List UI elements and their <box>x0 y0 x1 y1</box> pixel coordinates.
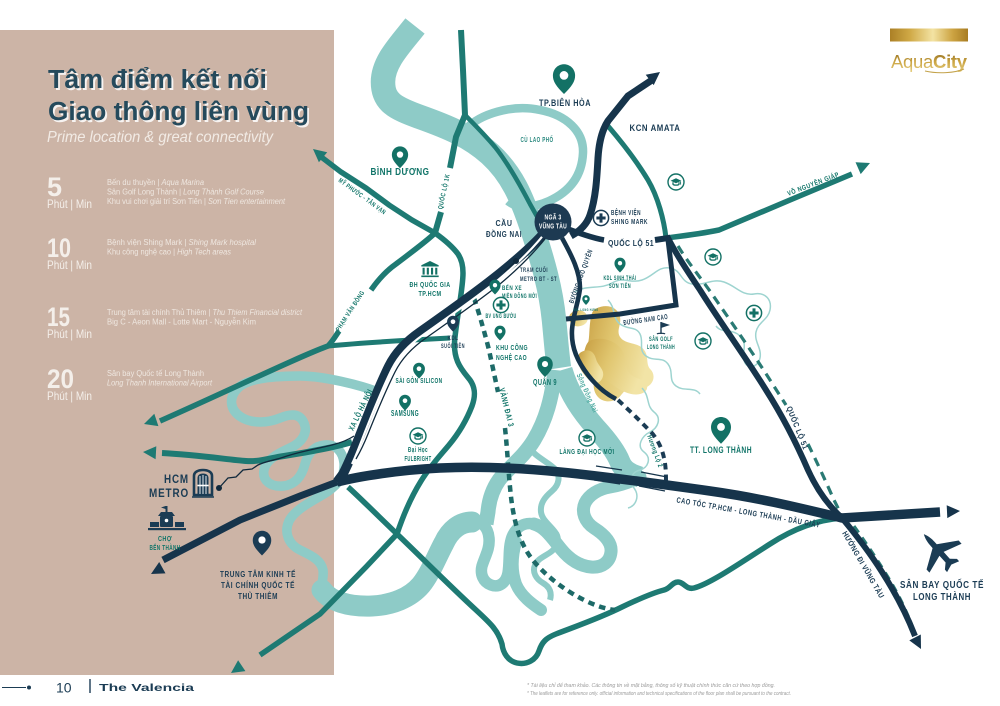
svg-text:ĐH QUỐC GIA: ĐH QUỐC GIA <box>410 279 451 289</box>
svg-text:Phút | Min: Phút | Min <box>47 327 92 341</box>
svg-text:SƠN TIÊN: SƠN TIÊN <box>609 281 631 290</box>
svg-text:* The leaflets are for referen: * The leaflets are for reference only. o… <box>527 691 791 697</box>
svg-text:Long Thanh International Airpo: Long Thanh International Airport <box>107 379 213 388</box>
svg-text:Phút | Min: Phút | Min <box>47 197 92 211</box>
svg-text:SÂN GOLF: SÂN GOLF <box>649 334 673 343</box>
svg-text:Giao thông liên vùng: Giao thông liên vùng <box>48 98 309 126</box>
svg-text:NGÃ 3: NGÃ 3 <box>545 213 562 222</box>
svg-text:ĐỒNG NAI: ĐỒNG NAI <box>486 228 522 239</box>
svg-text:SÀI GÒN SILICON: SÀI GÒN SILICON <box>396 376 443 385</box>
svg-text:Sân bay Quốc tế Long Thành: Sân bay Quốc tế Long Thành <box>107 369 204 378</box>
svg-text:KHU CÔNG: KHU CÔNG <box>496 343 528 352</box>
svg-text:The Valencia: The Valencia <box>99 682 194 694</box>
svg-text:Prime location & great connect: Prime location & great connectivity <box>47 129 274 146</box>
svg-text:Sân Golf Long Thành | Long Thà: Sân Golf Long Thành | Long Thành Golf Co… <box>107 188 265 197</box>
svg-text:KDL SINH THÁI: KDL SINH THÁI <box>604 273 637 282</box>
svg-text:BV UNG BƯỚU: BV UNG BƯỚU <box>486 311 517 320</box>
svg-text:SHING MARK: SHING MARK <box>611 219 648 226</box>
svg-text:BÌNH DƯƠNG: BÌNH DƯƠNG <box>371 165 430 178</box>
svg-text:Khu vui chơi giải trí Sơn Tiên: Khu vui chơi giải trí Sơn Tiên | Sơn Tie… <box>107 197 286 206</box>
svg-text:Trung tâm tài chính Thủ Thiêm: Trung tâm tài chính Thủ Thiêm | Thu Thie… <box>107 308 303 317</box>
svg-text:CHỢ: CHỢ <box>158 534 172 543</box>
svg-text:CẦU: CẦU <box>496 218 513 228</box>
svg-text:Khu công nghệ cao | High Tech: Khu công nghệ cao | High Tech areas <box>107 248 231 257</box>
svg-text:BẾN XE: BẾN XE <box>502 285 522 292</box>
svg-text:Bệnh viện Shing Mark | Shing M: Bệnh viện Shing Mark | Shing Mark hospit… <box>107 238 256 247</box>
svg-text:METRO: METRO <box>149 488 189 500</box>
svg-text:HCM: HCM <box>164 474 189 486</box>
svg-text:LÀNG ĐẠI HỌC MỚI: LÀNG ĐẠI HỌC MỚI <box>560 447 615 456</box>
svg-text:Tâm điểm kết nối: Tâm điểm kết nối <box>48 66 267 94</box>
svg-text:Big C - Aeon Mall - Lotte: Big C - Aeon Mall - Lotte Mart - Nguyễn … <box>107 318 256 327</box>
svg-text:LONG THÀNH: LONG THÀNH <box>647 342 675 351</box>
svg-text:Bến du thuyền | Aqua Marina: Bến du thuyền | Aqua Marina <box>107 178 205 187</box>
svg-text:VŨNG TÀU: VŨNG TÀU <box>539 222 567 231</box>
svg-text:Đại Học: Đại Học <box>408 445 428 454</box>
svg-text:TP.BIÊN HÒA: TP.BIÊN HÒA <box>539 97 591 108</box>
svg-text:MIỀN ĐÔNG MỚI: MIỀN ĐÔNG MỚI <box>502 292 537 300</box>
svg-text:METRO BT - ST: METRO BT - ST <box>520 276 557 283</box>
svg-text:LONG THÀNH: LONG THÀNH <box>913 590 971 603</box>
svg-text:Phút | Min: Phút | Min <box>47 389 92 403</box>
svg-text:TT. LONG THÀNH: TT. LONG THÀNH <box>690 444 752 455</box>
svg-text:KCN AMATA: KCN AMATA <box>630 123 681 134</box>
svg-text:SAMSUNG: SAMSUNG <box>391 409 419 418</box>
svg-text:10: 10 <box>56 680 72 696</box>
svg-text:NGHỆ CAO: NGHỆ CAO <box>496 353 527 362</box>
svg-text:TÀI CHÍNH QUỐC TẾ: TÀI CHÍNH QUỐC TẾ <box>221 580 295 590</box>
svg-text:SÂN BAY QUỐC TẾ: SÂN BAY QUỐC TẾ <box>900 577 984 591</box>
svg-text:AquaCity: AquaCity <box>891 51 968 72</box>
svg-text:* Tài liệu chỉ để tham khảo. C: * Tài liệu chỉ để tham khảo. Các thông t… <box>527 682 775 689</box>
svg-text:TRUNG TÂM KINH TẾ: TRUNG TÂM KINH TẾ <box>220 569 296 579</box>
svg-text:KDL LONG HƯNG: KDL LONG HƯNG <box>574 308 599 312</box>
svg-text:QUẬN 9: QUẬN 9 <box>533 376 557 387</box>
svg-text:Phút | Min: Phút | Min <box>47 258 92 272</box>
svg-text:TP.HCM: TP.HCM <box>419 289 442 298</box>
svg-text:BỆNH VIỆN: BỆNH VIỆN <box>611 208 641 217</box>
svg-text:QUỐC LỘ 51: QUỐC LỘ 51 <box>608 237 654 248</box>
svg-text:FULBRIGHT: FULBRIGHT <box>405 454 432 463</box>
svg-text:BẾN THÀNH: BẾN THÀNH <box>150 542 181 552</box>
svg-text:KDL: KDL <box>448 335 459 342</box>
svg-text:THỦ THIÊM: THỦ THIÊM <box>238 592 278 601</box>
